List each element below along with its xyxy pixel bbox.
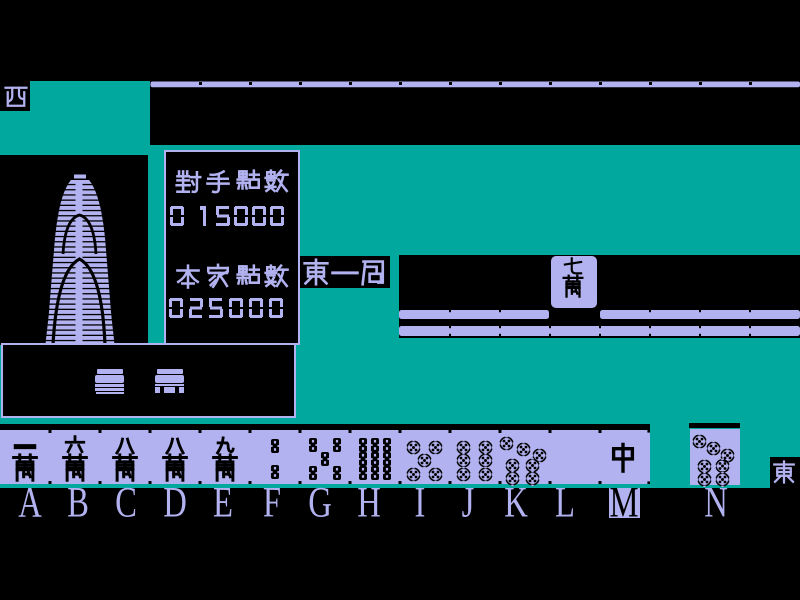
- svg-text:F: F: [263, 479, 281, 526]
- svg-text:J: J: [462, 479, 475, 526]
- svg-text:I: I: [415, 479, 426, 526]
- svg-text:A: A: [18, 479, 42, 526]
- svg-text:L: L: [555, 479, 575, 526]
- svg-text:N: N: [704, 479, 728, 526]
- svg-text:K: K: [504, 479, 528, 526]
- svg-text:H: H: [357, 479, 381, 526]
- svg-text:B: B: [67, 479, 89, 526]
- svg-text:C: C: [115, 479, 137, 526]
- svg-text:E: E: [213, 479, 233, 526]
- svg-text:G: G: [308, 479, 332, 526]
- svg-text:M: M: [609, 479, 638, 526]
- svg-text:D: D: [163, 479, 187, 526]
